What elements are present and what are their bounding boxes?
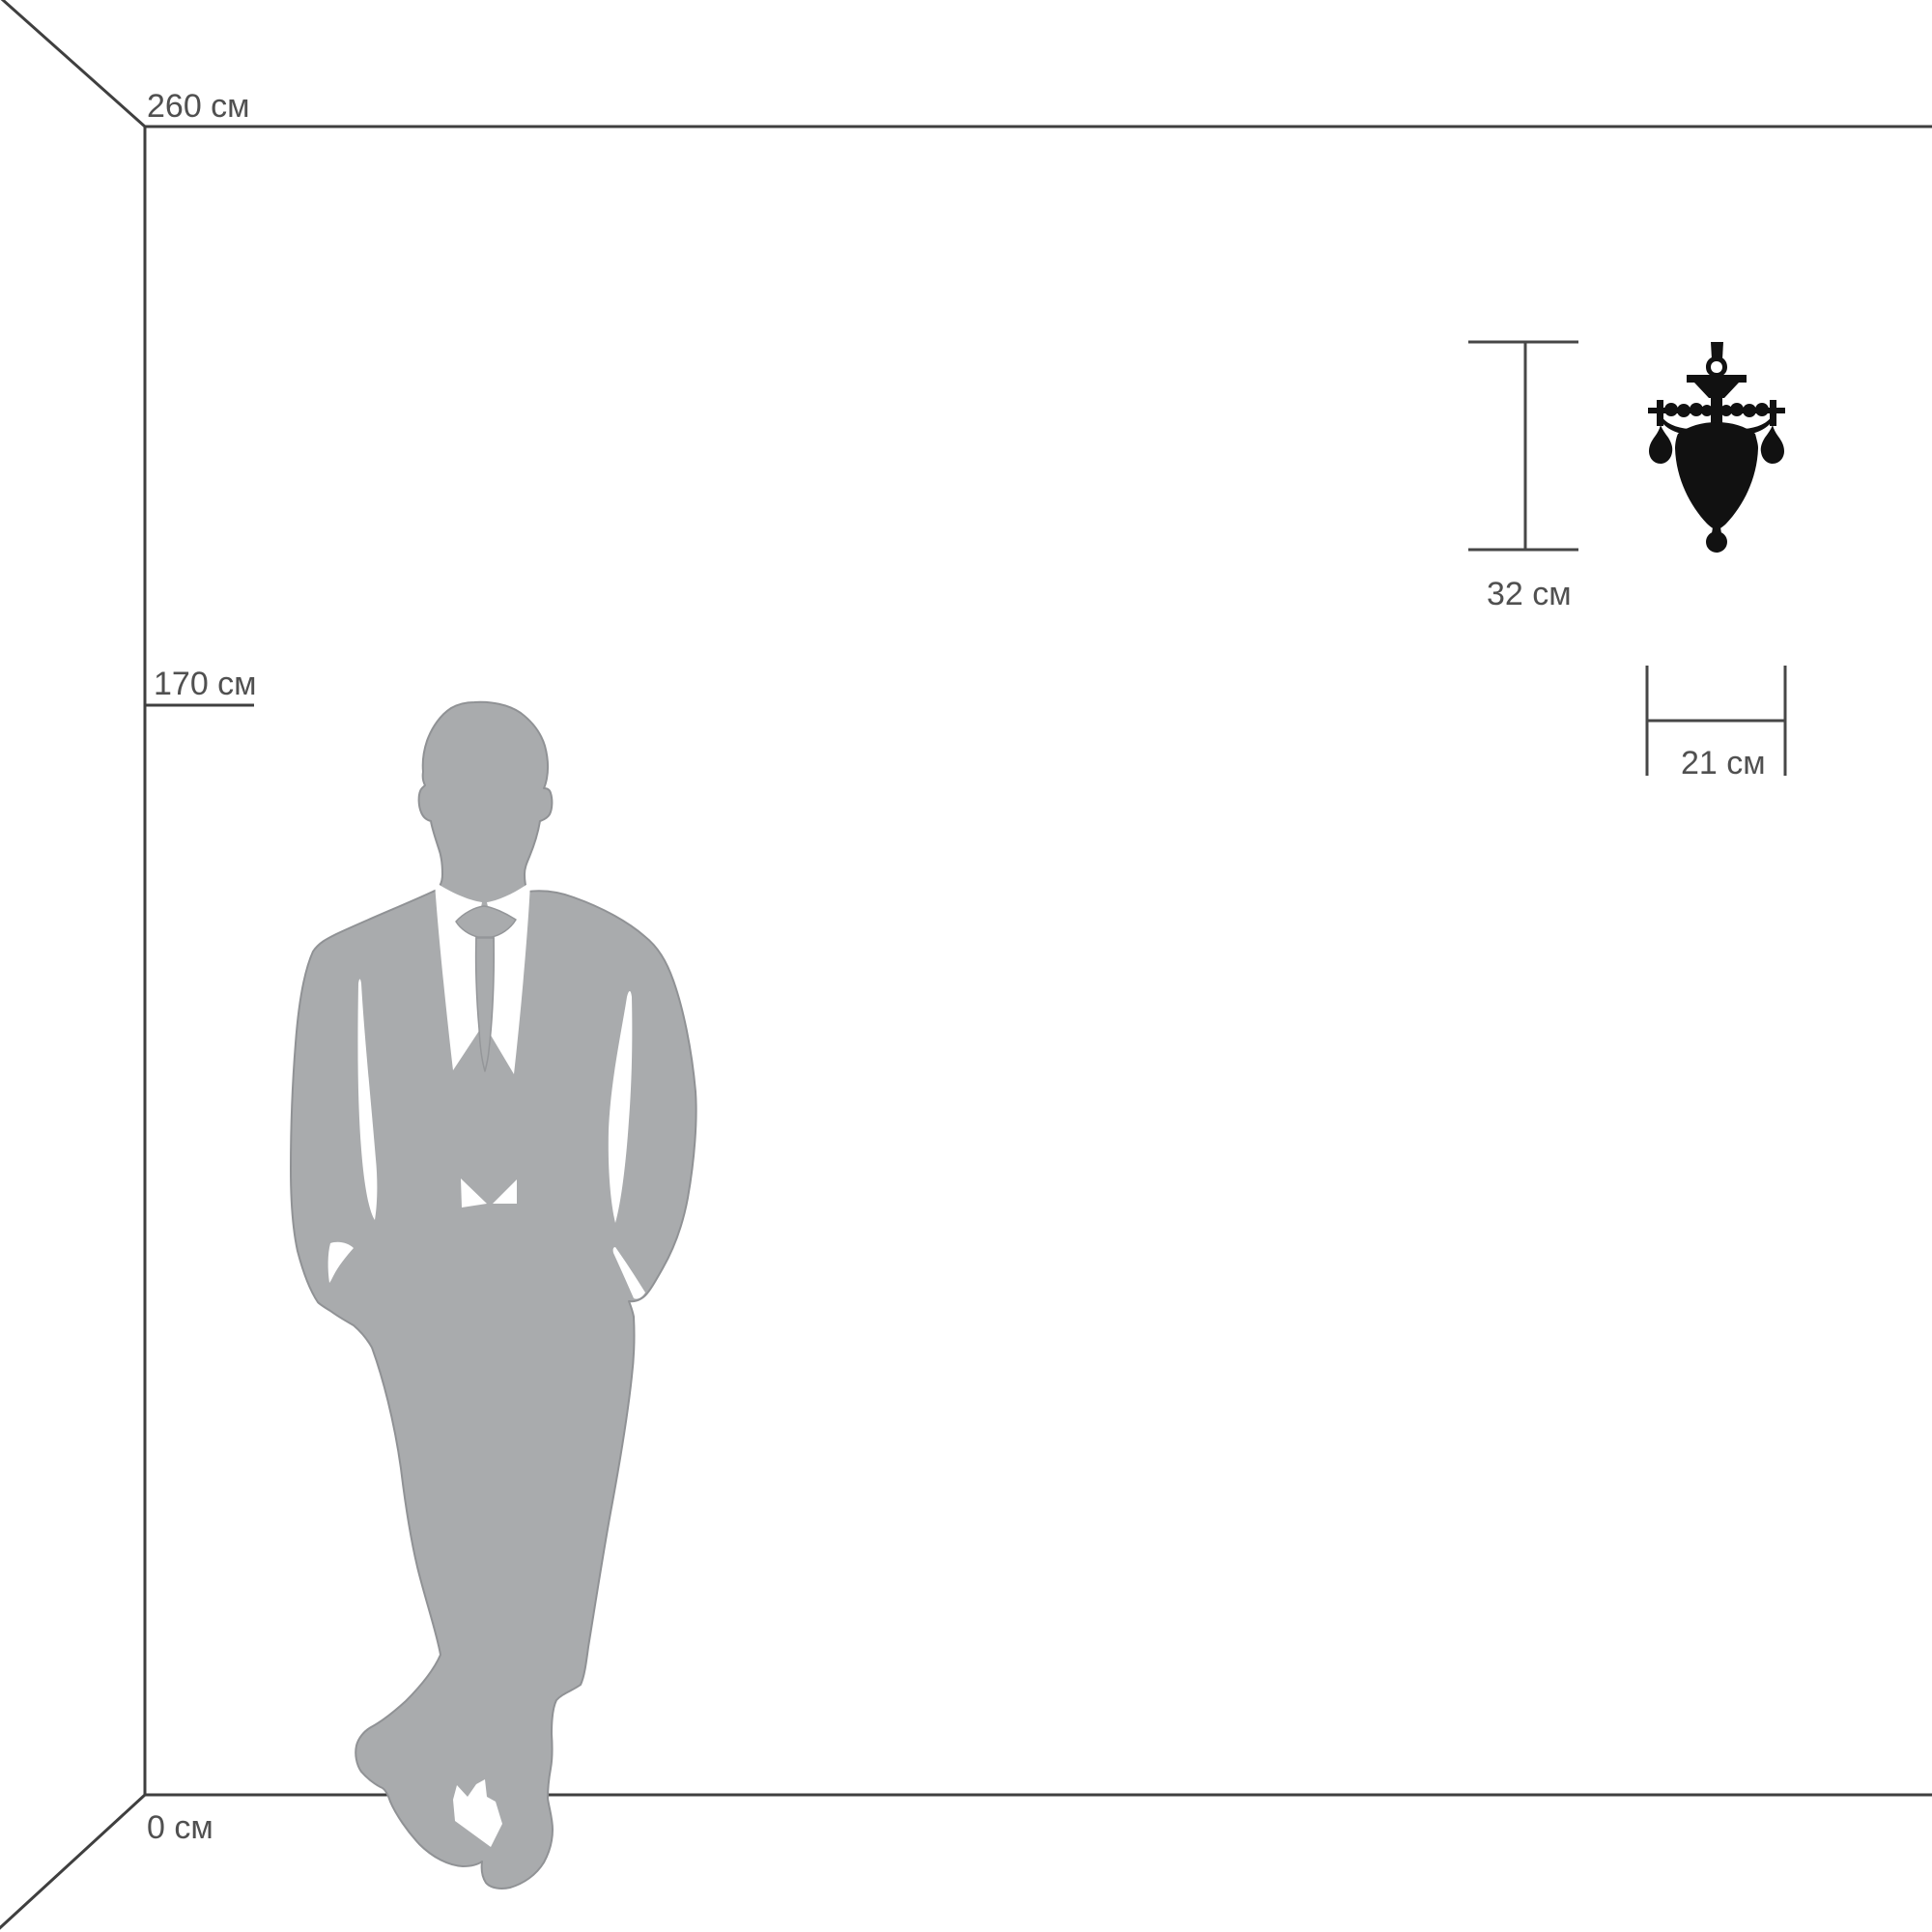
svg-text:21 см: 21 см	[1681, 745, 1766, 781]
svg-text:170 см: 170 см	[154, 666, 257, 702]
svg-text:260 см: 260 см	[147, 88, 250, 125]
svg-text:32 см: 32 см	[1487, 576, 1572, 612]
svg-text:0 см: 0 см	[147, 1809, 213, 1846]
